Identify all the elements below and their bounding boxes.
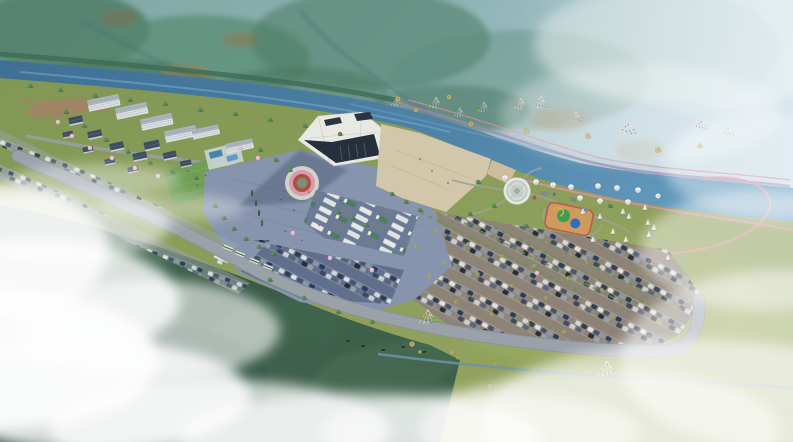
person	[420, 157, 421, 160]
bush-yellow	[500, 254, 503, 257]
bush-yellow	[454, 300, 457, 303]
person	[309, 190, 310, 193]
person	[448, 181, 449, 184]
bush-yellow	[434, 230, 437, 233]
aerial-rendering-svg	[0, 0, 793, 442]
bush-yellow	[490, 312, 493, 315]
aerial-rendering-image	[0, 0, 793, 442]
bush-yellow	[600, 288, 603, 291]
bush-yellow	[526, 322, 529, 325]
person	[294, 208, 295, 211]
person	[302, 238, 303, 241]
bush-yellow	[442, 260, 445, 263]
mist-wisp	[95, 194, 245, 222]
bush-yellow	[510, 284, 513, 287]
cypress-tree	[258, 210, 260, 216]
bush-yellow	[466, 242, 469, 245]
cypress-tree	[255, 200, 257, 206]
bush-yellow	[418, 350, 421, 353]
cypress-tree	[251, 190, 253, 196]
person	[281, 197, 282, 200]
person	[262, 223, 263, 226]
person	[206, 173, 207, 176]
bush-yellow	[566, 276, 569, 279]
cloud	[20, 280, 280, 380]
person	[197, 183, 198, 186]
bush-yellow	[476, 272, 479, 275]
bush-yellow	[562, 330, 565, 333]
person	[285, 229, 286, 232]
mist-wisp	[10, 164, 180, 196]
person	[319, 223, 320, 226]
bush-yellow	[414, 244, 417, 247]
bush-yellow	[578, 306, 581, 309]
mandala-plaza	[504, 178, 531, 205]
bush-yellow	[456, 356, 459, 359]
person	[188, 169, 189, 172]
bush-yellow	[428, 274, 431, 277]
bush-yellow	[494, 362, 497, 365]
person	[341, 198, 342, 201]
bush-yellow	[610, 316, 613, 319]
person	[432, 169, 433, 172]
bush-yellow	[532, 264, 535, 267]
bush-yellow	[544, 296, 547, 299]
